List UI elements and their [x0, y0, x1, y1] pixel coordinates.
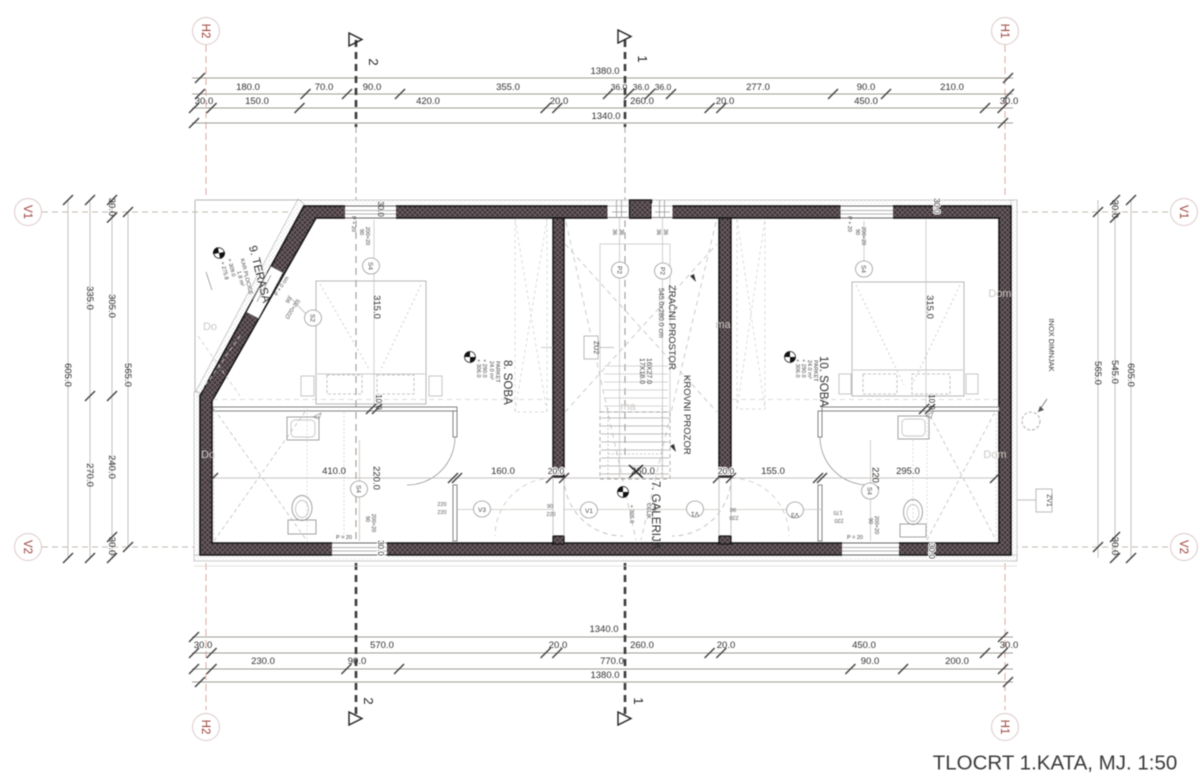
- svg-text:P2: P2: [659, 267, 666, 275]
- svg-text:545.0: 545.0: [1109, 360, 1120, 384]
- svg-text:770.0: 770.0: [600, 656, 624, 667]
- svg-text:200+20: 200+20: [873, 516, 879, 535]
- svg-text:90: 90: [730, 506, 736, 512]
- svg-text:30.0: 30.0: [106, 198, 117, 217]
- svg-text:24.0 m²: 24.0 m²: [488, 361, 494, 380]
- svg-text:1380.0: 1380.0: [590, 670, 619, 681]
- svg-text:295.0: 295.0: [896, 466, 920, 477]
- svg-text:270.0: 270.0: [84, 463, 95, 487]
- svg-text:90: 90: [364, 516, 370, 522]
- svg-text:17X18.0: 17X18.0: [638, 358, 645, 384]
- svg-text:36.0: 36.0: [655, 82, 672, 92]
- svg-text:S4: S4: [355, 485, 362, 493]
- svg-text:S2: S2: [309, 314, 316, 322]
- svg-text:30.0: 30.0: [106, 537, 117, 556]
- svg-text:H2: H2: [199, 24, 211, 39]
- svg-text:200.0: 200.0: [945, 656, 969, 667]
- svg-text:P + 20: P + 20: [350, 216, 356, 232]
- svg-text:1340.0: 1340.0: [591, 111, 620, 122]
- svg-text:S4: S4: [367, 262, 374, 270]
- svg-text:S4: S4: [866, 487, 873, 495]
- svg-text:36.0: 36.0: [633, 82, 650, 92]
- svg-text:570.0: 570.0: [370, 640, 394, 651]
- svg-text:420.0: 420.0: [416, 96, 440, 107]
- svg-text:+ 306.0: + 306.0: [475, 359, 481, 378]
- svg-text:36: 36: [655, 229, 661, 235]
- svg-text:S4: S4: [860, 265, 867, 273]
- svg-text:545.0x280.0 cm: 545.0x280.0 cm: [657, 288, 664, 338]
- svg-text:1: 1: [635, 55, 650, 62]
- svg-text:30.0: 30.0: [1109, 537, 1120, 556]
- svg-text:36: 36: [662, 229, 668, 235]
- svg-text:KROVNI PROZOR: KROVNI PROZOR: [681, 375, 692, 455]
- svg-text:240.0: 240.0: [106, 455, 117, 479]
- svg-text:ma: ma: [620, 401, 636, 413]
- svg-text:335.0: 335.0: [84, 286, 95, 310]
- svg-text:P = 20: P = 20: [336, 535, 352, 541]
- svg-text:70.0: 70.0: [315, 82, 334, 93]
- svg-text:90.0: 90.0: [363, 82, 382, 93]
- svg-text:20.0: 20.0: [548, 466, 565, 476]
- svg-text:220: 220: [437, 510, 446, 516]
- svg-text:220: 220: [437, 502, 446, 508]
- svg-text:+ 305.0: + 305.0: [628, 505, 634, 524]
- svg-text:90: 90: [547, 504, 553, 510]
- svg-text:160.0: 160.0: [491, 466, 515, 477]
- svg-text:170: 170: [833, 509, 842, 515]
- svg-text:30.0: 30.0: [194, 640, 213, 651]
- svg-text:220: 220: [546, 512, 555, 518]
- svg-text:ma: ma: [715, 319, 731, 331]
- svg-text:30.0: 30.0: [1109, 200, 1120, 219]
- svg-text:- m²: - m²: [651, 503, 657, 513]
- svg-text:565.0: 565.0: [1092, 361, 1103, 385]
- svg-text:Do: Do: [201, 449, 215, 461]
- svg-text:180.0: 180.0: [236, 82, 260, 93]
- svg-text:30.0: 30.0: [932, 198, 941, 214]
- svg-text:H2: H2: [199, 720, 211, 735]
- svg-text:277.0: 277.0: [746, 82, 770, 93]
- svg-text:H1: H1: [998, 24, 1010, 39]
- svg-text:20.0: 20.0: [717, 640, 736, 651]
- svg-text:90: 90: [358, 229, 364, 235]
- svg-text:V1: V1: [691, 510, 699, 517]
- svg-text:565.0: 565.0: [122, 363, 133, 387]
- svg-text:315.0: 315.0: [371, 295, 382, 319]
- svg-text:ZRAČNI PROSTOR: ZRAČNI PROSTOR: [666, 285, 677, 370]
- svg-text:ZV1: ZV1: [1045, 494, 1052, 507]
- svg-text:Dom: Dom: [983, 449, 1006, 461]
- svg-text:90: 90: [867, 518, 873, 524]
- svg-text:30.0: 30.0: [927, 543, 936, 559]
- svg-text:+ 290.0: + 290.0: [800, 359, 806, 378]
- svg-text:260.0: 260.0: [630, 96, 654, 107]
- svg-text:P = 20: P = 20: [847, 535, 863, 541]
- svg-text:90.0: 90.0: [857, 82, 876, 93]
- svg-text:30.0: 30.0: [1000, 96, 1019, 107]
- svg-text:30.0: 30.0: [195, 96, 214, 107]
- svg-text:Do: Do: [203, 321, 217, 333]
- svg-text:P + 20: P + 20: [846, 216, 852, 232]
- svg-text:16X27.0: 16X27.0: [645, 358, 652, 384]
- svg-text:355.0: 355.0: [496, 82, 520, 93]
- svg-text:V2: V2: [1177, 540, 1189, 554]
- svg-text:200+20: 200+20: [860, 227, 866, 246]
- svg-text:305.0: 305.0: [106, 294, 117, 318]
- svg-text:INOX DIMNJAK: INOX DIMNJAK: [1047, 318, 1056, 371]
- svg-text:1: 1: [631, 697, 646, 704]
- svg-text:36: 36: [618, 229, 624, 235]
- svg-text:410.0: 410.0: [322, 466, 346, 477]
- svg-text:ČELIK: ČELIK: [645, 503, 652, 519]
- svg-text:605.0: 605.0: [1125, 363, 1136, 387]
- svg-text:V3: V3: [478, 507, 486, 514]
- svg-text:Dom: Dom: [988, 288, 1011, 300]
- svg-text:+ 306.0: + 306.0: [794, 359, 800, 378]
- svg-text:200+20: 200+20: [364, 227, 370, 246]
- svg-text:1380.0: 1380.0: [590, 66, 619, 77]
- svg-text:90: 90: [854, 229, 860, 235]
- svg-text:20.0: 20.0: [550, 96, 569, 107]
- svg-text:220: 220: [729, 514, 738, 520]
- svg-text:V3: V3: [791, 511, 799, 518]
- svg-text:220: 220: [834, 517, 843, 523]
- svg-text:TLOCRT 1.KATA, MJ. 1:50: TLOCRT 1.KATA, MJ. 1:50: [933, 752, 1178, 775]
- svg-text:2: 2: [366, 58, 381, 65]
- svg-text:V1: V1: [1177, 205, 1189, 219]
- svg-text:36: 36: [611, 229, 617, 235]
- svg-text:260.0: 260.0: [631, 466, 655, 477]
- svg-text:V2: V2: [21, 540, 33, 554]
- svg-text:1340.0: 1340.0: [589, 624, 618, 635]
- svg-text:8. SOBA: 8. SOBA: [501, 360, 513, 405]
- svg-text:200+20: 200+20: [370, 514, 376, 533]
- svg-text:20.0: 20.0: [718, 466, 735, 476]
- svg-text:450.0: 450.0: [854, 96, 878, 107]
- svg-text:2: 2: [361, 697, 376, 704]
- svg-text:210.0: 210.0: [940, 82, 964, 93]
- svg-text:+ 290.0: + 290.0: [481, 359, 487, 378]
- svg-text:90.0: 90.0: [861, 656, 880, 667]
- svg-text:260.0: 260.0: [630, 640, 654, 651]
- svg-text:30.0: 30.0: [376, 540, 385, 556]
- svg-text:30.0: 30.0: [376, 201, 385, 217]
- svg-text:V1: V1: [585, 508, 593, 515]
- svg-text:H1: H1: [998, 720, 1010, 735]
- svg-text:P2: P2: [616, 266, 623, 274]
- svg-text:315.0: 315.0: [924, 295, 935, 319]
- svg-text:150.0: 150.0: [245, 96, 269, 107]
- svg-text:30.0: 30.0: [1000, 640, 1019, 651]
- svg-text:230.0: 230.0: [251, 656, 275, 667]
- svg-text:605.0: 605.0: [62, 363, 73, 387]
- svg-text:450.0: 450.0: [852, 640, 876, 651]
- svg-text:155.0: 155.0: [761, 466, 785, 477]
- svg-text:20.0: 20.0: [716, 96, 735, 107]
- svg-text:V1: V1: [21, 205, 33, 219]
- svg-text:220.0: 220.0: [371, 466, 382, 490]
- svg-text:20.0: 20.0: [549, 640, 568, 651]
- svg-text:ZU2: ZU2: [592, 341, 599, 354]
